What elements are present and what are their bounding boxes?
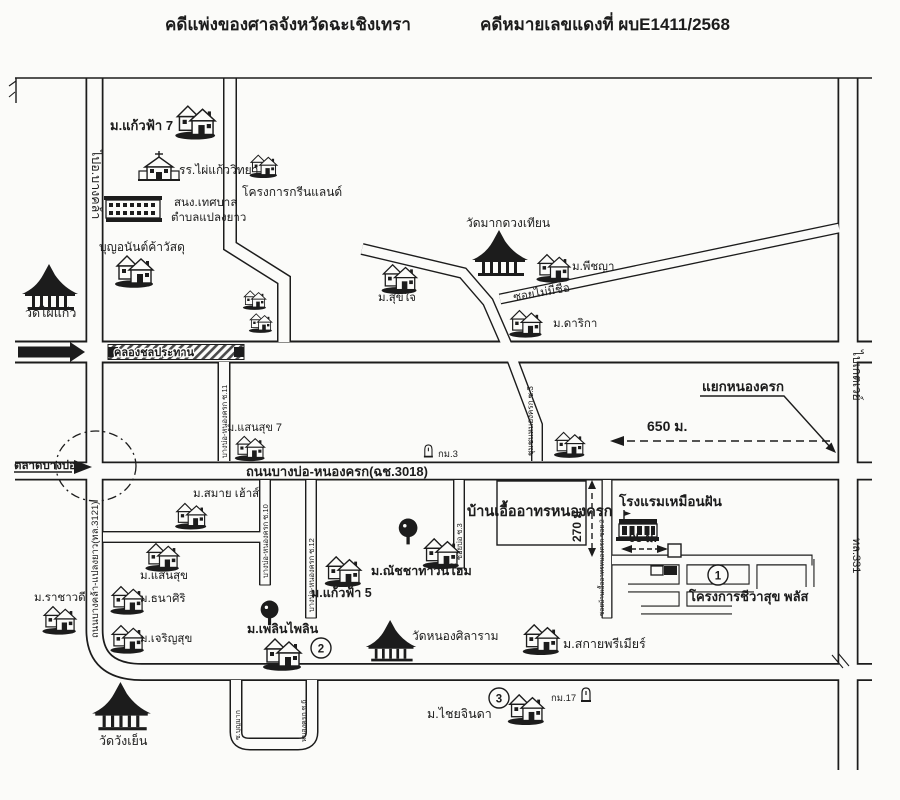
- house-icon-rachawadi: [42, 607, 75, 635]
- label-wat-phai-kaew: วัดไผ่แก้ว: [25, 306, 76, 320]
- house-icon-phloen-phailin: [263, 639, 301, 671]
- label-municipal-2: ตำบลแปลงยาว: [171, 211, 246, 224]
- label-wat-nong-silaram: วัดหนองศิลาราม: [412, 629, 499, 643]
- temple-icon-wang-yen: [92, 682, 151, 730]
- junction-leader-line: [700, 396, 831, 448]
- house-icon-smile-house: [175, 503, 206, 529]
- label-greenland: โครงการกรีนแลนด์: [242, 185, 342, 199]
- roads-fill-layer: [15, 78, 872, 770]
- scanned-court-map-page: 1 2 3 คดีแพ่งของศาลจังหวัดฉะเชิงเทรา คดี…: [0, 0, 900, 800]
- plot-square-filled: [664, 566, 677, 575]
- km17-label: กม.17: [551, 693, 576, 704]
- house-icon-sansuk: [145, 544, 178, 572]
- house-icon-chai-jinda: [508, 695, 544, 725]
- temple-icon-mak-duang-thian: [472, 230, 528, 276]
- house-icon-cluster-a: [243, 291, 266, 310]
- school-icon: [138, 151, 180, 180]
- label-smile-house: ม.สมาย เฮ้าส์: [193, 486, 259, 500]
- label-wat-mak-duang-thian: วัดมากดวงเทียน: [466, 216, 550, 230]
- label-junction-nongkhrok: แยกหนองครก: [702, 379, 784, 394]
- road-label-canal: คลองชลประทาน: [114, 346, 195, 359]
- map-canvas: 1 2 3 คดีแพ่งของศาลจังหวัดฉะเชิงเทรา คดี…: [0, 0, 900, 800]
- house-icon-phitchaya: [536, 255, 569, 283]
- label-phloen-phailin: ม.เพลินไพลิน: [247, 621, 319, 636]
- house-icon-boonanan: [115, 256, 153, 288]
- dist-650-label: 650 ม.: [647, 418, 687, 434]
- label-muanfan-hotel: โรงแรมเหมือนฝัน: [618, 492, 723, 509]
- dist-95-arrow-right: [657, 545, 668, 553]
- dist-650-arrowhead: [610, 436, 624, 446]
- label-municipal-1: สนง.เทศบาล: [174, 197, 237, 209]
- point-3-number: 3: [496, 694, 502, 706]
- label-sansuk: ม.แสนสุข: [140, 570, 188, 582]
- dist-270-arrow-bottom: [588, 548, 596, 557]
- house-icon-thanasiri: [110, 587, 143, 615]
- road-label-soi12: บางบ่อ-หนองครก ซ.12: [307, 538, 316, 612]
- road-label-soi-uea-athon2: ซอยบ้านเอื้ออาทรหนองครก ซอย 2: [597, 519, 606, 616]
- header-court-title: คดีแพ่งของศาลจังหวัดฉะเชิงเทรา: [165, 14, 411, 34]
- house-icon-sukjai: [382, 265, 417, 294]
- label-thanasiri: ม.ธนาศิริ: [140, 592, 186, 605]
- municipal-building-icon: [104, 196, 162, 222]
- plot-square-open: [651, 566, 663, 575]
- temple-icon-phai-kaew: [22, 264, 78, 310]
- point-2-number: 2: [318, 644, 324, 656]
- map-labels: คดีแพ่งของศาลจังหวัดฉะเชิงเทรา คดีหมายเล…: [14, 12, 864, 748]
- dist-95-label: 95 ม.: [629, 531, 657, 545]
- header-case-number: คดีหมายเลขแดงที่ ผบE1411/2568: [480, 12, 730, 34]
- road-label-chumchon-soi3: ชุมชนหนองครก ซ.3: [526, 386, 535, 456]
- label-phai-kaew-school: รร.ไผ่แก้ววิทยา: [179, 163, 258, 177]
- point-1-number: 1: [715, 571, 722, 583]
- house-icon-kaewfa7: [175, 106, 215, 139]
- road-label-soi10: บางบ่อ-หนองครก ซ.10: [261, 504, 270, 578]
- road-label-bangkhla-plaengyao: ถนนบางคล้า-แปลงยาว(ทล.3121): [90, 502, 101, 638]
- label-market: ตลาดบางบ่อ: [14, 459, 76, 472]
- road-label-to-bangkhla: ไปอ.บางคล้า: [89, 149, 103, 219]
- dist-95-arrow-left: [621, 545, 632, 553]
- label-rachawadi: ม.ราชาวดี: [34, 591, 86, 604]
- dist-270-arrow-top: [588, 480, 596, 489]
- road-label-soi-no-name: ซอยไม่มีชื่อ: [512, 279, 571, 304]
- house-icon-cluster-b: [249, 314, 272, 333]
- label-charoensuk: ม.เจริญสุข: [140, 632, 192, 645]
- road-label-main-3018: ถนนบางบ่อ-หนองครก(ฉช.3018): [246, 464, 428, 479]
- road-label-hwy331: ทล.331: [850, 538, 862, 573]
- label-darika: ม.ดาริกา: [553, 317, 597, 330]
- plot-square-open-top: [668, 544, 681, 557]
- road-label-nongkhrok-soi6: หนองครก ซ.6: [301, 700, 308, 742]
- km3-label: กม.3: [438, 449, 458, 460]
- label-sky-premier: ม.สกายพรีเมียร์: [563, 637, 646, 651]
- house-icon-charoensuk: [110, 626, 143, 654]
- road-label-to-gateway: ไปเกตเวย์: [850, 349, 864, 401]
- km17-milestone-icon: [581, 688, 591, 701]
- temple-icon-nong-silaram: [366, 620, 416, 661]
- label-natcha-townhome: ม.ณัชชาทาวน์โฮม: [371, 563, 472, 578]
- label-sukjai: ม.สุขใจ: [378, 291, 416, 304]
- label-chai-jinda: ม.ไชยจินดา: [427, 707, 492, 721]
- house-icon-darika: [509, 311, 541, 338]
- label-wat-wang-yen: วัดวังเย็น: [99, 733, 148, 748]
- scan-tick-marks: [9, 81, 16, 97]
- house-icon-unlabeled: [554, 432, 584, 457]
- house-icon-sky-premier: [523, 625, 559, 655]
- label-phitchaya: ม.พีชญา: [572, 260, 614, 273]
- label-chiwasuk-plus: โครงการชีวาสุข พลัส: [688, 588, 809, 605]
- map-decorations: [9, 78, 872, 668]
- km3-milestone-icon: [424, 445, 433, 457]
- house-icon-sansuk7: [235, 436, 265, 461]
- canal-bar-cap-right: [234, 347, 244, 357]
- label-kaewfa5: ม.แก้วฟ้า 5: [311, 586, 372, 600]
- label-boonanan: บุญอนันต์ค้าวัสดุ: [99, 240, 185, 255]
- road-label-soi-bunmak: ซ.บุญมาก: [235, 710, 242, 740]
- tree-icon-natcha: [399, 519, 418, 545]
- canal-solid-bar: [18, 347, 70, 358]
- road-label-soi-bo3: ซอยบ่อ ซ.3: [455, 523, 464, 560]
- house-icon-kaewfa5: [325, 557, 361, 587]
- label-sansuk7: ม.แสนสุข 7: [227, 422, 282, 434]
- label-kaewfa7: ม.แก้วฟ้า 7: [110, 118, 173, 133]
